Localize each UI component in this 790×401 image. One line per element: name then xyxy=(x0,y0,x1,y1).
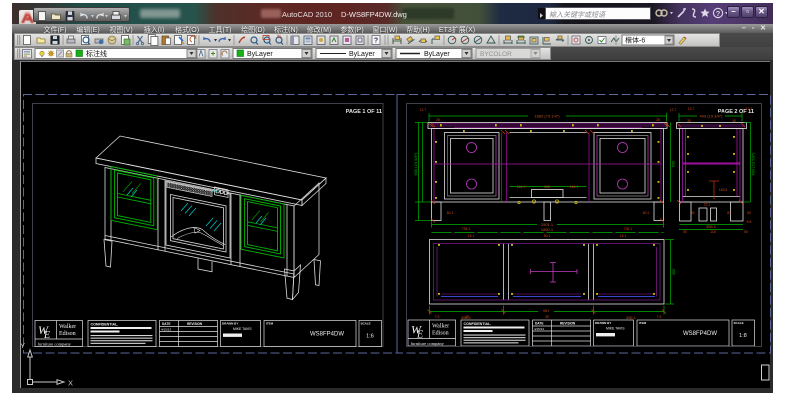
svg-text:9.8: 9.8 xyxy=(747,220,752,224)
svg-text:7.5: 7.5 xyxy=(435,315,440,319)
svg-text:163.5: 163.5 xyxy=(719,188,728,192)
svg-text:600: 600 xyxy=(671,160,676,167)
svg-text:DRAWN BY: DRAWN BY xyxy=(222,322,238,326)
svg-text:DATE: DATE xyxy=(162,322,170,326)
svg-text:WS8FP4DW: WS8FP4DW xyxy=(310,332,344,338)
svg-text:MIKE TAVIS: MIKE TAVIS xyxy=(233,327,252,331)
svg-text:30: 30 xyxy=(732,119,736,123)
svg-text:Edison: Edison xyxy=(59,331,76,337)
svg-text:furniture company: furniture company xyxy=(38,342,72,347)
svg-text:25: 25 xyxy=(465,315,469,319)
svg-text:ByLayer: ByLayer xyxy=(349,51,375,58)
svg-text:50: 50 xyxy=(744,230,748,234)
svg-text:Walker: Walker xyxy=(59,324,76,330)
svg-text:REVISION: REVISION xyxy=(187,322,203,326)
svg-text:楷体-6: 楷体-6 xyxy=(625,36,645,45)
svg-text:164.1: 164.1 xyxy=(517,185,526,189)
svg-text:81: 81 xyxy=(691,211,695,215)
svg-text:735.1: 735.1 xyxy=(624,227,633,231)
svg-text:ByLayer: ByLayer xyxy=(424,51,450,58)
svg-text:396.1: 396.1 xyxy=(626,315,637,320)
svg-text:22.1: 22.1 xyxy=(704,203,711,207)
svg-text:?: ? xyxy=(716,9,721,18)
svg-text:ByLayer: ByLayer xyxy=(247,51,273,58)
svg-text:90.1: 90.1 xyxy=(544,234,551,238)
svg-text:Y: Y xyxy=(21,341,25,350)
svg-text:81: 81 xyxy=(727,211,731,215)
svg-text:400 (15 3/4"): 400 (15 3/4") xyxy=(700,114,724,119)
svg-text:BYCOLOR: BYCOLOR xyxy=(480,51,512,58)
svg-text:50: 50 xyxy=(683,230,687,234)
svg-text:15.1: 15.1 xyxy=(468,234,475,238)
svg-text:25: 25 xyxy=(545,315,549,319)
svg-text:X: X xyxy=(68,379,73,388)
svg-text:1860.1: 1860.1 xyxy=(541,227,554,232)
svg-text:164.1: 164.1 xyxy=(570,185,579,189)
svg-text:28: 28 xyxy=(436,118,440,122)
svg-text:PAGE 1 OF 11: PAGE 1 OF 11 xyxy=(346,109,382,115)
svg-text:1860 (73 1/4"): 1860 (73 1/4") xyxy=(534,114,560,119)
svg-text:?: ? xyxy=(374,38,378,45)
svg-text:SCALE: SCALE xyxy=(361,322,371,326)
svg-text:12.7: 12.7 xyxy=(746,107,753,111)
svg-text:28: 28 xyxy=(656,118,660,122)
svg-text:118: 118 xyxy=(710,230,716,234)
svg-text:7.5: 7.5 xyxy=(657,315,662,319)
svg-text:CONFIDENTIAL.: CONFIDENTIAL. xyxy=(91,323,119,327)
svg-text:15.1: 15.1 xyxy=(620,234,627,238)
svg-text:%: % xyxy=(277,35,282,41)
svg-text:600 (23 5/8"): 600 (23 5/8") xyxy=(413,152,418,176)
svg-text:30: 30 xyxy=(687,119,691,123)
svg-text:1:6: 1:6 xyxy=(366,334,374,340)
svg-text:60.1: 60.1 xyxy=(447,211,454,215)
svg-text:12.7: 12.7 xyxy=(688,107,695,111)
svg-text:735.1: 735.1 xyxy=(462,227,471,231)
svg-text:12.7: 12.7 xyxy=(670,108,677,112)
svg-text:355.1: 355.1 xyxy=(706,224,717,229)
svg-text:E: E xyxy=(43,330,50,341)
svg-text:12.7: 12.7 xyxy=(420,108,427,112)
svg-text:400: 400 xyxy=(671,268,676,275)
svg-text:451: 451 xyxy=(543,308,550,313)
svg-text:60.1: 60.1 xyxy=(643,211,650,215)
svg-text:4/15/13: 4/15/13 xyxy=(161,328,171,332)
svg-text:1:8: 1:8 xyxy=(739,333,747,339)
svg-text:标注线: 标注线 xyxy=(86,49,107,58)
svg-text:338: 338 xyxy=(544,185,550,189)
svg-text:60: 60 xyxy=(747,211,751,215)
svg-text:600 (23 5/8"): 600 (23 5/8") xyxy=(751,152,756,176)
svg-text:ITEM: ITEM xyxy=(266,322,274,326)
